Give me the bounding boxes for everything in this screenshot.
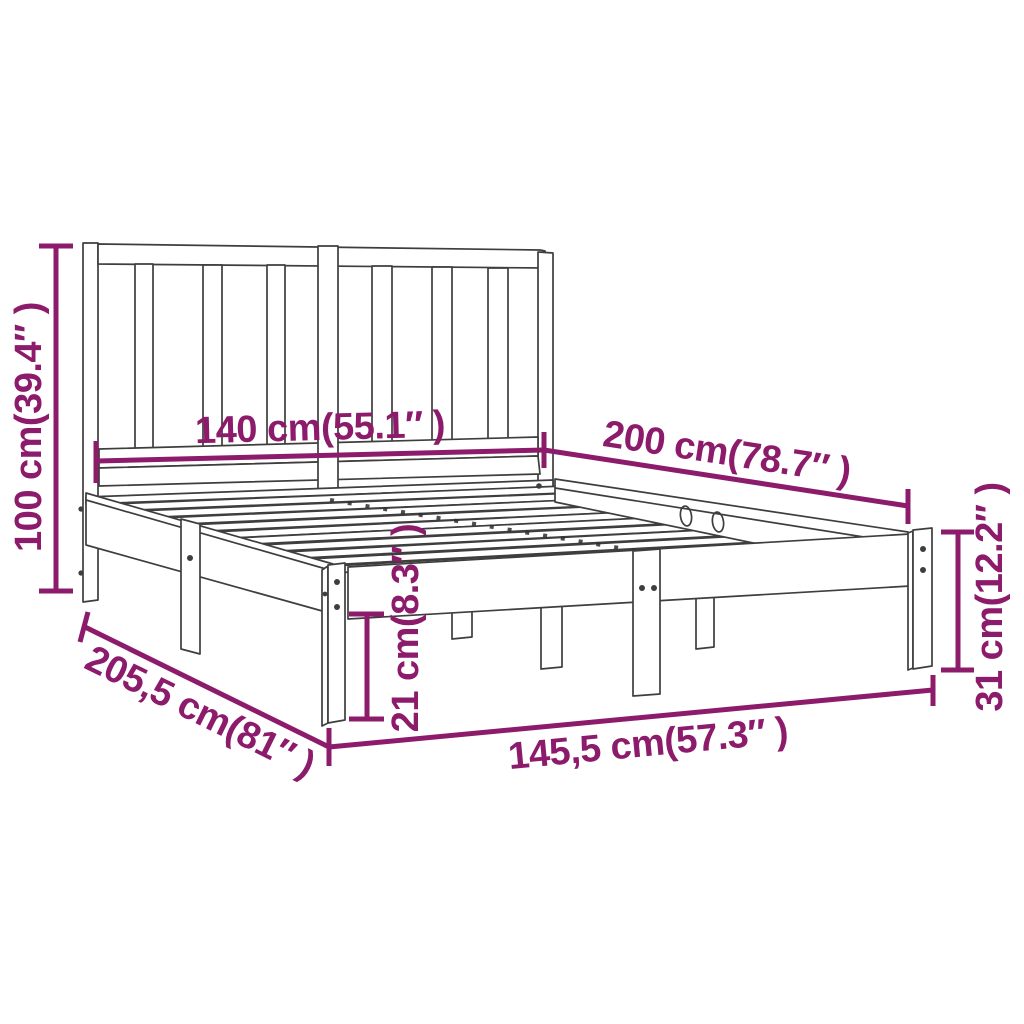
screw-icon [651, 585, 657, 591]
dimension-label-bed-length: 200 cm(78.7″ ) [600, 413, 853, 493]
foot-left-post-side [322, 566, 328, 726]
headboard-slat [135, 264, 153, 449]
dimension-label-clearance-height: 21 cm(8.3″ ) [385, 524, 427, 733]
dimension-total-length: 205,5 cm(81″ ) [79, 612, 329, 786]
bed-frame-diagram: 100 cm(39.4″ ) 140 cm(55.1″ ) 200 cm(78.… [0, 0, 1024, 1024]
diagram-canvas: 100 cm(39.4″ ) 140 cm(55.1″ ) 200 cm(78.… [0, 0, 1024, 1024]
screw-icon [323, 592, 328, 597]
screw-icon [536, 483, 542, 489]
screw-icon [639, 585, 645, 591]
dimension-label-total-width: 145,5 cm(57.3″ ) [506, 710, 789, 778]
dimension-label-total-length: 205,5 cm(81″ ) [79, 638, 322, 786]
screw-icon [334, 604, 340, 610]
headboard-slat [488, 268, 508, 439]
dimension-label-frame-height: 31 cm(12.2″ ) [969, 482, 1011, 711]
screw-icon [334, 579, 340, 585]
foot-left-post [328, 563, 345, 723]
center-rail-leg [541, 600, 562, 669]
screw-icon [187, 555, 193, 561]
screw-icon [920, 567, 926, 573]
dimension-headboard-height: 100 cm(39.4″ ) [8, 246, 73, 591]
screw-icon [920, 546, 926, 552]
dimension-label-headboard-height: 100 cm(39.4″ ) [8, 302, 50, 552]
dimension-frame-height: 31 cm(12.2″ ) [941, 482, 1011, 711]
screw-icon [78, 506, 83, 511]
screw-icon [78, 570, 83, 575]
foot-center-leg [633, 549, 660, 696]
left-side-leg [181, 519, 200, 654]
dimension-label-headboard-width: 140 cm(55.1″ ) [195, 404, 446, 453]
